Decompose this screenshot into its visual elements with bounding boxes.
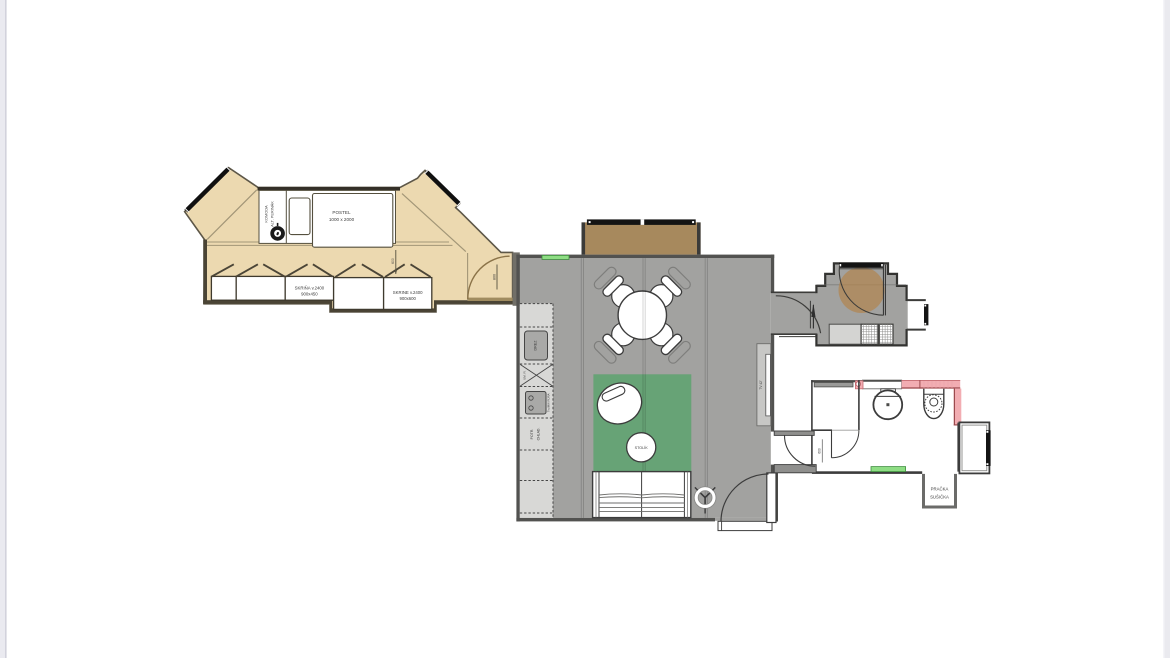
svg-text:900x450: 900x450 (301, 292, 318, 297)
svg-text:SKRINE v.2400: SKRINE v.2400 (393, 290, 423, 295)
svg-text:800: 800 (492, 274, 496, 280)
svg-text:PRAČKA: PRAČKA (931, 487, 949, 492)
svg-text:600: 600 (391, 258, 395, 264)
svg-text:600: 600 (818, 448, 822, 454)
svg-text:DREZ: DREZ (534, 340, 538, 351)
svg-text:CHLAD.: CHLAD. (537, 428, 541, 441)
svg-text:UM. R.: UM. R. (523, 370, 527, 379)
svg-text:POSTEL: POSTEL (332, 210, 351, 215)
svg-text:1000 x 2000: 1000 x 2000 (329, 217, 355, 222)
svg-text:Tru/MW RÚRA: Tru/MW RÚRA (546, 393, 551, 412)
svg-text:SKRIŇA v.2400: SKRIŇA v.2400 (295, 286, 325, 291)
svg-text:900x600: 900x600 (399, 296, 416, 301)
svg-text:TV 42': TV 42' (759, 380, 763, 390)
svg-text:POTR.: POTR. (530, 429, 534, 440)
svg-text:STOLÍK: STOLÍK (635, 446, 649, 450)
svg-text:KOMODA: KOMODA (264, 205, 269, 223)
svg-text:ALT. PERINÁK: ALT. PERINÁK (270, 201, 275, 227)
svg-text:SUŠIČKA: SUŠIČKA (930, 494, 949, 499)
